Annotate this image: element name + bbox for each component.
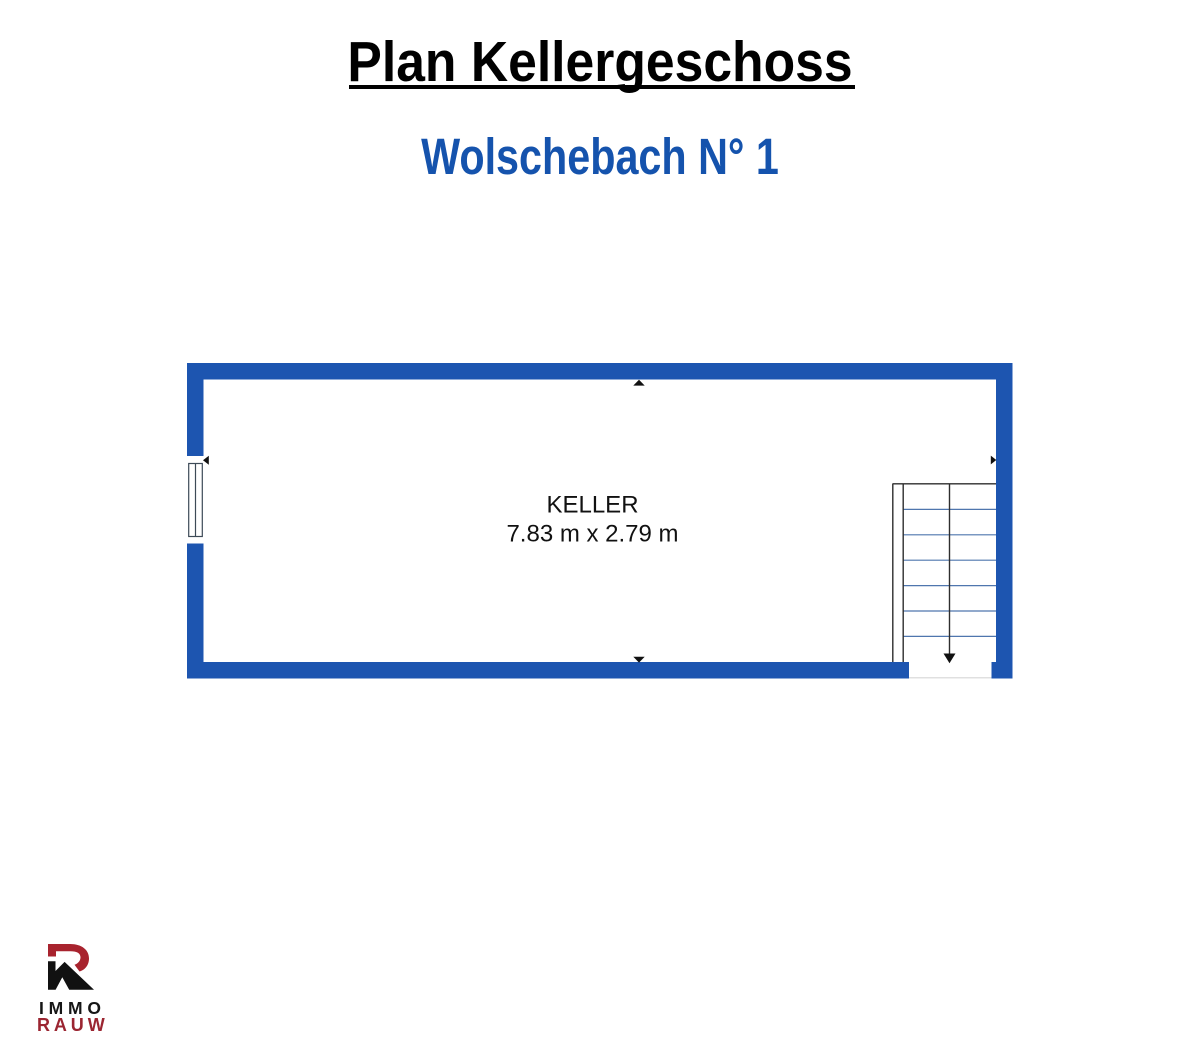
svg-text:7.83 m x 2.79 m: 7.83 m x 2.79 m: [506, 521, 678, 548]
svg-text:KELLER: KELLER: [546, 492, 638, 519]
